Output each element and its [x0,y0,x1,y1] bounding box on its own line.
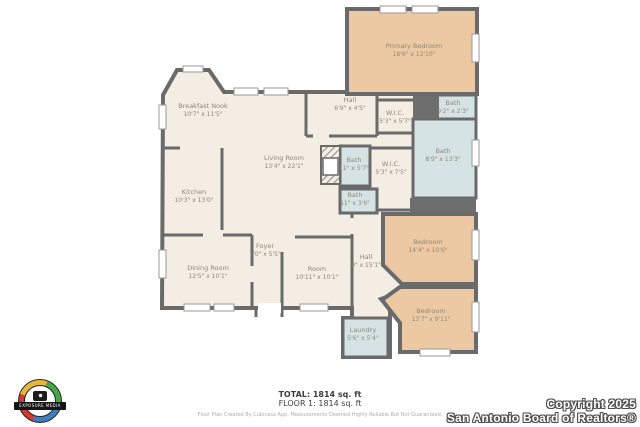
room-label-living-room: Living Room 13'4" x 22'1" [264,155,304,170]
room-label-bedroom-right: Bedroom 14'4" x 10'6" [408,239,447,254]
room-dims: 8'9" x 13'3" [425,155,460,162]
room-label-hall-upper: Hall 6'9" x 4'5" [334,97,365,112]
room-name: Bath [339,157,369,165]
room-dims: 14'4" x 10'6" [408,246,447,253]
room-name: W.I.C. [379,110,410,118]
room-dims: 5'6" x 5'4" [347,334,378,341]
room-dims: 7'0" x 5'5" [249,250,280,257]
room-dims: 12'5" x 10'1" [187,272,229,279]
entry-opening [258,303,281,313]
room-label-primary-bedroom: Primary Bedroom 18'6" x 12'10" [386,43,443,58]
room-dims: 10'7" x 11'5" [178,110,228,117]
room-dims: 13'7" x 9'11" [411,315,450,322]
room-name: Bath [437,100,468,108]
room-name: Room [296,266,339,274]
room-name: Bedroom [411,308,450,316]
room-label-breakfast-nook: Breakfast Nook 10'7" x 11'5" [178,103,228,118]
room-name: Kitchen [174,189,213,197]
room-name: Bath [340,192,370,200]
room-dims: 18'6" x 12'10" [386,50,443,57]
room-name: Living Room [264,155,304,163]
room-label-wic-lower: W.I.C. 5'3" x 7'5" [375,161,406,176]
room-dims: 9'2" x 2'3" [437,107,468,114]
floor-plan-page: Primary Bedroom 18'6" x 12'10" Breakfast… [0,0,640,427]
copyright-notice: Copyright 2025 San Antonio Board of Real… [447,398,636,425]
room-name: Hall [351,254,381,262]
room-name: Laundry [347,327,378,335]
room-label-bedroom-bottom: Bedroom 13'7" x 9'11" [411,308,450,323]
room-dims: 13'4" x 22'1" [264,162,304,169]
room-dims: 5'3" x 5'7" [379,117,410,124]
room-name: Hall [334,97,365,105]
room-dims: 11" x 5'7" [339,164,369,171]
room-label-laundry: Laundry 5'6" x 5'4" [347,327,378,342]
logo-banner-text: EXPOSURE MEDIA [14,402,66,410]
room-label-bath-hall: Bath 11" x 5'7" [339,157,369,172]
room-label-bath-niche: Bath 9'2" x 2'3" [437,100,468,115]
room-dims: 9" x 15'1" [351,261,381,268]
room-name: W.I.C. [375,161,406,169]
room-label-bath-lower: Bath 11" x 3'6" [340,192,370,207]
room-name: Bedroom [408,239,447,247]
logo-inner-circle [24,385,56,417]
room-name: Primary Bedroom [386,43,443,51]
room-name: Foyer [249,243,280,251]
room-dims: 5'3" x 7'5" [375,168,406,175]
room-name: Breakfast Nook [178,103,228,111]
exposure-media-logo: EXPOSURE MEDIA [15,376,65,426]
room-label-kitchen: Kitchen 10'3" x 13'0" [174,189,213,204]
floor-plan [0,0,640,427]
room-label-room: Room 10'11" x 10'1" [296,266,339,281]
room-name: Bath [425,148,460,156]
room-label-hall-lower: Hall 9" x 15'1" [351,254,381,269]
room-label-foyer: Foyer 7'0" x 5'5" [249,243,280,258]
copyright-line2: San Antonio Board of Realtors® [447,412,636,426]
room-dims: 6'9" x 4'5" [334,104,365,111]
camera-lens-icon [38,393,43,398]
room-label-wic-upper: W.I.C. 5'3" x 5'7" [379,110,410,125]
room-label-bath-primary: Bath 8'9" x 13'3" [425,148,460,163]
room-dims: 10'3" x 13'0" [174,196,213,203]
copyright-line1: Copyright 2025 [447,398,636,412]
room-dims: 11" x 3'6" [340,199,370,206]
room-dims: 10'11" x 10'1" [296,273,339,280]
room-name: Dining Room [187,265,229,273]
fireplace [321,146,340,184]
room-label-dining-room: Dining Room 12'5" x 10'1" [187,265,229,280]
